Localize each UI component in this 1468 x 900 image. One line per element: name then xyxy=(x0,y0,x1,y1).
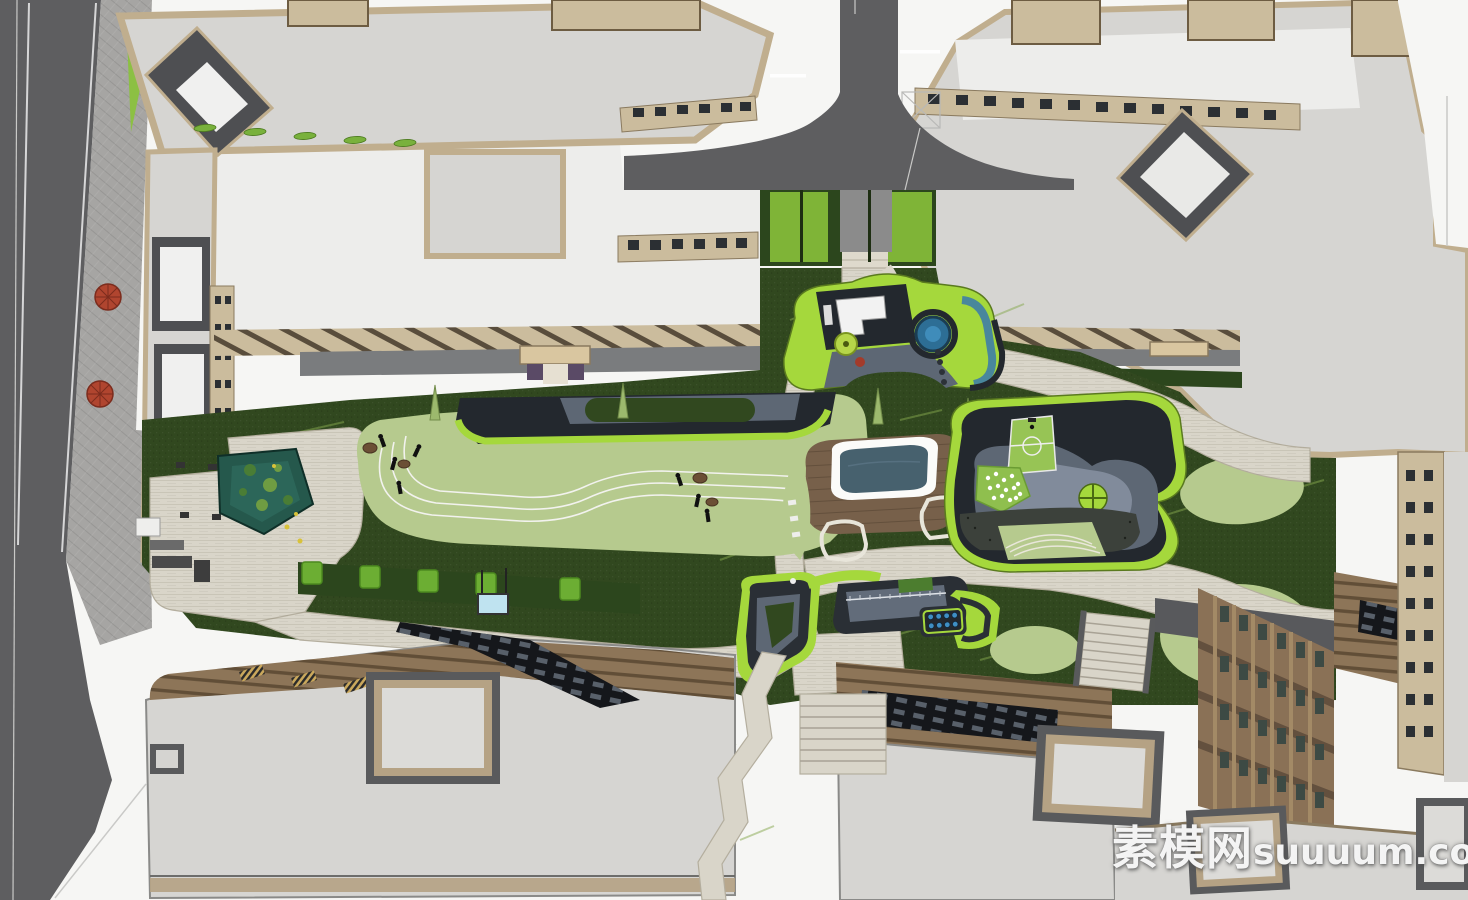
roof-block-protruding xyxy=(427,152,563,256)
site-plan-render: 素模网suuuum.com xyxy=(0,0,1468,900)
lawn-mound xyxy=(990,626,1080,674)
climbing-dome xyxy=(1079,484,1107,512)
roof-notch xyxy=(150,744,184,774)
display-screen xyxy=(478,594,508,614)
stairs-south xyxy=(800,694,886,774)
roof-access-block xyxy=(366,672,500,784)
adventure-playground-east xyxy=(945,392,1186,572)
game-panel xyxy=(919,604,967,637)
play-knob-red xyxy=(855,357,865,367)
roof-block xyxy=(552,0,700,30)
umbrella-icon xyxy=(95,284,121,310)
building-entrance-canopy xyxy=(520,346,590,384)
roof-block xyxy=(1012,0,1100,44)
roof-access-block xyxy=(1186,805,1290,894)
pool-water xyxy=(840,445,928,493)
entry-lawn-panel xyxy=(770,192,828,262)
entry-drive xyxy=(840,190,892,252)
roof-block xyxy=(288,0,368,26)
roof-block xyxy=(1188,0,1274,40)
stairs-east xyxy=(1073,610,1157,694)
terraced-lawn xyxy=(998,522,1106,560)
landscape-plan-canvas xyxy=(0,0,1468,900)
building-entrance-canopy xyxy=(1150,342,1208,356)
roof-access-block xyxy=(1416,798,1468,890)
tower-facade-east xyxy=(1398,452,1444,775)
upper-track xyxy=(456,392,836,444)
basketball-hoop xyxy=(1030,425,1034,429)
umbrella-icon xyxy=(87,381,113,407)
window-band-inner xyxy=(618,232,758,262)
roof-access-block xyxy=(1033,725,1165,828)
basketball-half-court xyxy=(1008,416,1056,474)
